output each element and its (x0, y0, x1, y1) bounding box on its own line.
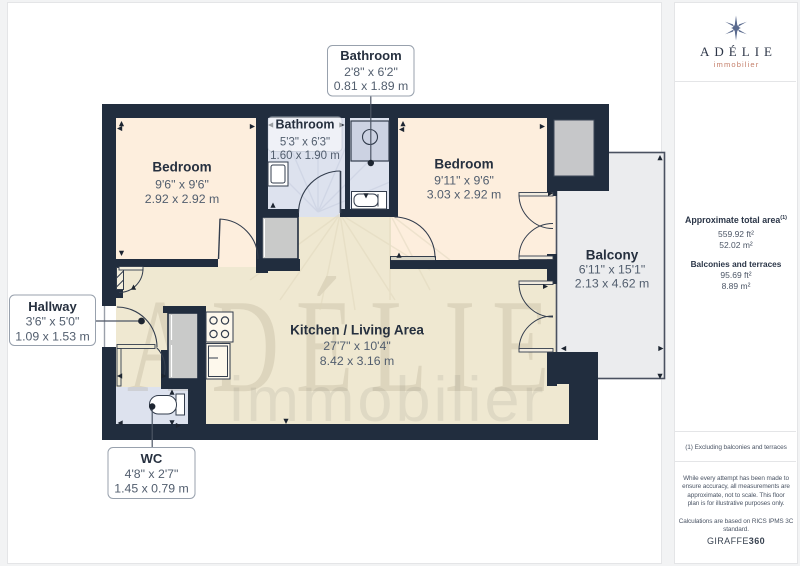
svg-text:2.13 x 4.62 m: 2.13 x 4.62 m (575, 277, 650, 291)
svg-text:Kitchen / Living Area: Kitchen / Living Area (290, 323, 424, 338)
svg-text:0.81 x 1.89 m: 0.81 x 1.89 m (334, 79, 409, 93)
svg-text:Bathroom: Bathroom (340, 48, 401, 63)
svg-text:Balcony: Balcony (586, 248, 639, 263)
svg-text:WC: WC (141, 451, 163, 466)
svg-text:8.42 x 3.16 m: 8.42 x 3.16 m (320, 354, 395, 368)
svg-text:Bedroom: Bedroom (434, 157, 493, 172)
svg-text:9'6" x 9'6": 9'6" x 9'6" (155, 178, 209, 192)
svg-text:5'3" x 6'3": 5'3" x 6'3" (280, 137, 330, 149)
svg-text:2'8" x 6'2": 2'8" x 6'2" (344, 65, 398, 79)
svg-text:Hallway: Hallway (28, 299, 77, 314)
svg-text:9'11" x 9'6": 9'11" x 9'6" (434, 174, 494, 188)
svg-text:6'11" x 15'1": 6'11" x 15'1" (579, 263, 646, 277)
svg-text:1.60 x 1.90 m: 1.60 x 1.90 m (270, 150, 340, 162)
svg-text:4'8" x 2'7": 4'8" x 2'7" (125, 467, 179, 481)
svg-text:Bathroom: Bathroom (275, 118, 334, 132)
svg-text:1.09 x 1.53 m: 1.09 x 1.53 m (15, 330, 90, 344)
svg-text:3.03 x 2.92 m: 3.03 x 2.92 m (427, 188, 502, 202)
svg-text:1.45 x 0.79 m: 1.45 x 0.79 m (114, 482, 189, 496)
svg-text:2.92 x 2.92 m: 2.92 x 2.92 m (145, 192, 220, 206)
svg-text:27'7" x 10'4": 27'7" x 10'4" (323, 339, 390, 353)
svg-text:Bedroom: Bedroom (152, 160, 211, 175)
svg-text:3'6" x 5'0": 3'6" x 5'0" (26, 315, 80, 329)
